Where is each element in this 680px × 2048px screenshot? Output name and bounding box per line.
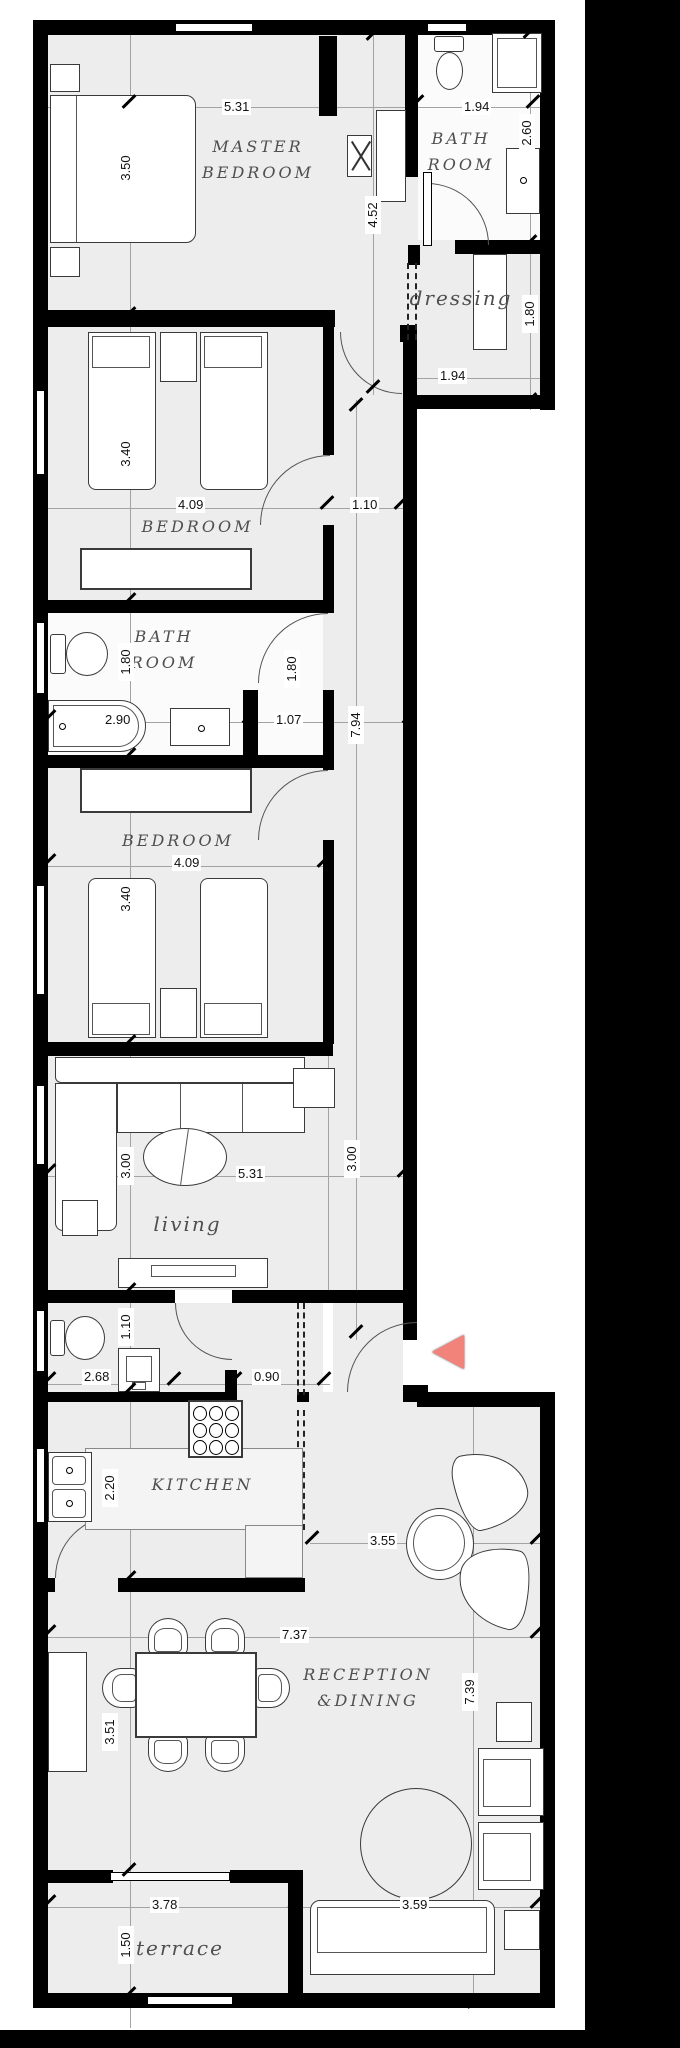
toilet-tank	[434, 36, 464, 52]
chair-seat	[211, 1740, 239, 1764]
armchair	[478, 1748, 544, 1816]
side-table	[504, 1910, 540, 1950]
border-band-bottom	[0, 2030, 680, 2048]
dim-corridor-width: 1.10	[350, 497, 379, 513]
wall-right-bottom	[540, 1392, 555, 2008]
dim-living-left: 3.00	[118, 1147, 134, 1185]
dim-bath-top-depth: 2.60	[519, 114, 535, 152]
side-table	[496, 1702, 532, 1742]
dim-bath-left-depth: 1.80	[118, 643, 134, 681]
dim-terrace-depth: 1.50	[118, 1926, 134, 1964]
cabinet	[376, 110, 406, 202]
chair-seat	[258, 1674, 282, 1702]
vanity-sink	[506, 148, 540, 214]
dim-wc-depth: 1.10	[118, 1308, 134, 1346]
single-bed	[200, 878, 268, 1038]
side-table	[293, 1068, 335, 1108]
window-bath-top	[427, 23, 467, 32]
bath-vanity	[170, 708, 230, 746]
room-label-dressing: dressing	[405, 286, 517, 310]
room-label-bath-top: BATHROOM	[418, 126, 504, 178]
nightstand	[160, 332, 197, 382]
dim-master-width: 5.31	[222, 99, 251, 115]
chair-seat	[154, 1740, 182, 1764]
tall-cabinet	[48, 1652, 87, 1772]
nightstand	[160, 988, 197, 1038]
sofa-seats	[117, 1083, 305, 1133]
tv-console	[118, 1258, 268, 1288]
dim-kitchen-entry: 0.90	[252, 1369, 281, 1385]
room-label-living: living	[140, 1212, 235, 1236]
dim-bath-right-depth: 1.80	[284, 650, 300, 688]
dim-line	[33, 1384, 330, 1385]
wardrobe	[80, 768, 252, 813]
wall-terrace-top-right	[230, 1870, 303, 1883]
dim-bedroom1-width: 4.09	[176, 497, 205, 513]
drain	[66, 1467, 73, 1474]
entrance-arrow	[432, 1335, 464, 1369]
dining-chair	[148, 1734, 188, 1772]
sofa-back	[55, 1057, 305, 1083]
wall-terrace-top-left	[33, 1870, 113, 1883]
sofa-seat	[317, 1907, 487, 1953]
room-label-bedroom2: BEDROOM	[118, 828, 238, 854]
wall-living-bottom-left	[33, 1290, 175, 1303]
round-rug	[360, 1788, 472, 1900]
shower-tray	[497, 38, 537, 88]
wall-living-bottom-right	[232, 1290, 417, 1303]
window-wc	[36, 1310, 45, 1372]
wall-corridor-right	[403, 340, 417, 1340]
ac-unit	[347, 135, 372, 177]
dim-terrace-width: 3.78	[150, 1897, 179, 1913]
pouf	[62, 1200, 98, 1236]
wall-bath-mid-bottom	[33, 755, 334, 768]
drain	[66, 1500, 73, 1507]
wall-bath-mid-top	[33, 600, 334, 613]
pillow	[92, 336, 150, 368]
dim-sitting-width: 3.55	[368, 1533, 397, 1549]
wall-top-outer	[33, 20, 555, 35]
wall-bath-stub	[243, 690, 258, 756]
dim-living-right: 3.00	[344, 1140, 360, 1178]
dim-sofa-width: 3.59	[400, 1897, 429, 1913]
dim-kitchen-depth: 2.20	[102, 1469, 118, 1507]
opening-corridor-entry	[297, 1303, 305, 1395]
border-band-right	[585, 0, 680, 2048]
window-bedroom1	[36, 390, 45, 475]
dim-bedroom2-width: 4.09	[172, 855, 201, 871]
kitchen-sink	[48, 1452, 92, 1522]
dim-dining-depth: 3.51	[102, 1713, 118, 1751]
dim-bedroom1-depth: 3.40	[118, 435, 134, 473]
wall-corridor-left-1	[323, 327, 334, 455]
window-kitchen	[36, 1448, 45, 1523]
coffee-table	[143, 1128, 227, 1186]
dim-dressing-depth: 1.80	[522, 295, 538, 333]
armchair-seat	[483, 1759, 531, 1807]
shower	[492, 33, 542, 93]
dining-chair	[205, 1618, 245, 1656]
stove	[188, 1400, 243, 1458]
kitchen-counter-low	[245, 1525, 303, 1578]
dim-vanity-width: 1.07	[274, 712, 303, 728]
dim-dressing-width: 1.94	[438, 368, 467, 384]
room-label-bedroom1: BEDROOM	[135, 514, 260, 540]
dining-chair	[205, 1734, 245, 1772]
faucet	[520, 177, 527, 184]
toilet-tank	[50, 1320, 65, 1356]
dim-corridor-length: 7.94	[348, 706, 364, 744]
toilet-bowl	[65, 1316, 105, 1360]
bed-headboard	[51, 96, 77, 242]
wall-right-top	[540, 20, 555, 410]
armchair-seat	[483, 1833, 531, 1881]
pillow	[204, 1003, 262, 1035]
dim-reception-depth: 7.39	[462, 1673, 478, 1711]
chair-seat	[154, 1628, 182, 1652]
wall-master-bottom	[33, 310, 335, 327]
wall-corridor-left-4	[323, 840, 334, 1044]
door-leaf-bath-top	[423, 172, 432, 246]
window-master-top	[175, 23, 253, 32]
dim-reception-width: 7.37	[280, 1627, 309, 1643]
room-label-terrace: terrace	[130, 1936, 230, 1960]
room-label-kitchen: KITCHEN	[145, 1472, 260, 1498]
window-bedroom2	[36, 885, 45, 995]
dim-bathtub-width: 2.90	[103, 712, 132, 728]
floor-plan: MASTERBEDROOM BATHROOM dressing BEDROOM …	[0, 0, 680, 2048]
dim-living-width: 5.31	[236, 1166, 265, 1182]
window-terrace-bottom	[147, 1996, 233, 2005]
wall-kitchen-bottom	[118, 1578, 305, 1592]
room-label-reception: RECEPTION&DINING	[298, 1662, 438, 1714]
room-label-master-bedroom: MASTERBEDROOM	[198, 134, 318, 186]
dim-hall-depth: 4.52	[365, 196, 381, 234]
toilet-bowl	[66, 632, 108, 676]
window-terrace-top	[110, 1872, 230, 1881]
dim-line	[356, 400, 357, 1340]
table-top	[413, 1515, 465, 1571]
wardrobe	[80, 548, 252, 590]
window-bath-mid	[36, 622, 45, 694]
nightstand	[50, 64, 80, 92]
dim-bedroom2-depth: 3.40	[118, 880, 134, 918]
dim-wc-width: 2.68	[82, 1369, 111, 1385]
tv	[151, 1265, 236, 1277]
single-bed	[200, 332, 268, 490]
armchair	[478, 1822, 544, 1890]
wall-bedroom2-living	[33, 1042, 333, 1056]
basin	[126, 1356, 152, 1382]
dim-line	[417, 378, 540, 379]
dining-chair	[252, 1668, 290, 1708]
chair-seat	[112, 1674, 136, 1702]
wall-kitchen-bottom-left	[33, 1578, 55, 1592]
nightstand	[50, 247, 80, 277]
dining-table	[135, 1652, 257, 1738]
wall-pillar	[408, 245, 420, 265]
drain	[59, 723, 66, 730]
wall-reception-top	[417, 1392, 555, 1407]
chair-seat	[211, 1628, 239, 1652]
dim-master-depth: 3.50	[118, 149, 134, 187]
dining-chair	[148, 1618, 188, 1656]
window-living	[36, 1085, 45, 1165]
faucet	[198, 725, 205, 732]
toilet-tank	[50, 634, 66, 674]
dim-bath-top-width: 1.94	[462, 99, 491, 115]
toilet-bowl	[436, 52, 463, 90]
wc-sink	[118, 1348, 160, 1392]
pillow	[204, 336, 262, 368]
pillow	[92, 1003, 150, 1035]
